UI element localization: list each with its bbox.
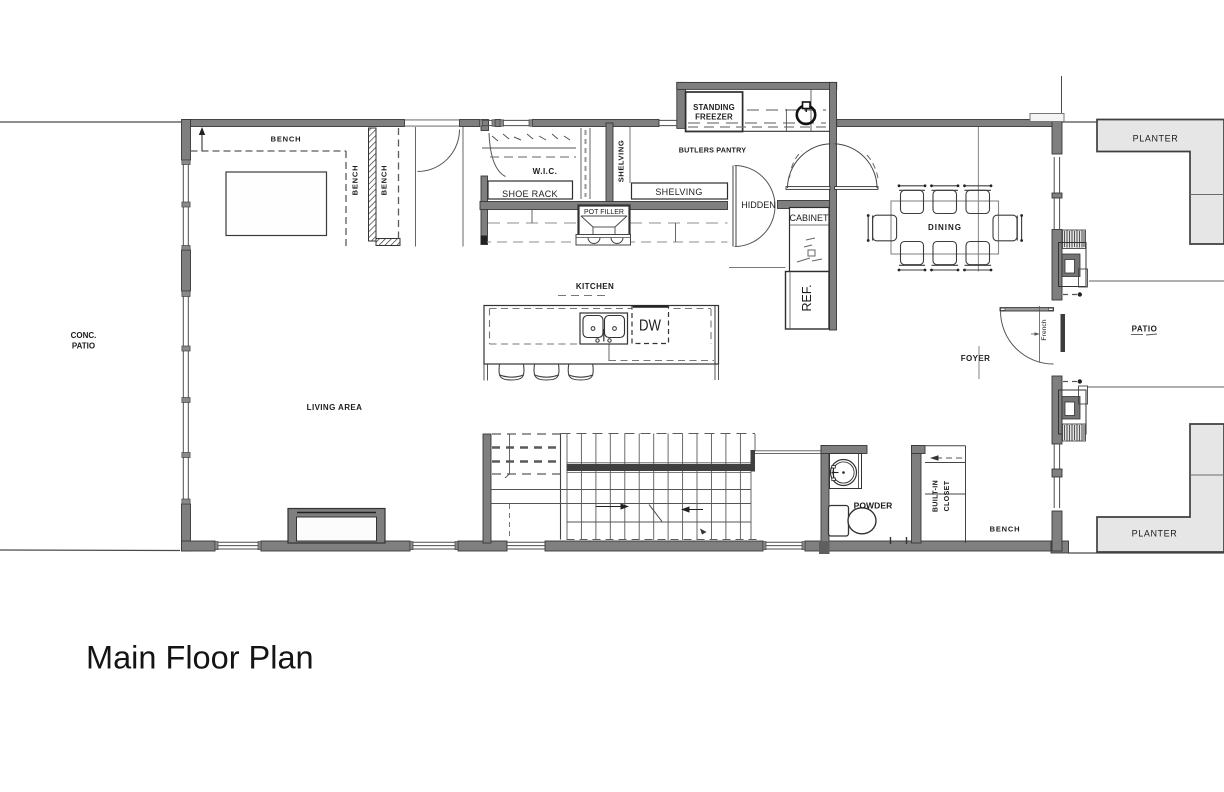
svg-text:Main Floor Plan: Main Floor Plan xyxy=(86,640,314,676)
svg-text:FOYER: FOYER xyxy=(961,354,991,363)
svg-text:DINING: DINING xyxy=(928,223,962,232)
svg-text:DW: DW xyxy=(639,318,662,335)
svg-text:STANDING: STANDING xyxy=(693,103,735,112)
svg-text:French: French xyxy=(1041,319,1048,340)
svg-text:PLANTER: PLANTER xyxy=(1133,134,1179,144)
svg-text:KITCHEN: KITCHEN xyxy=(576,282,614,291)
svg-text:SHOE RACK: SHOE RACK xyxy=(502,189,558,199)
svg-text:CABINET: CABINET xyxy=(789,213,829,223)
svg-text:SHELVING: SHELVING xyxy=(655,187,702,197)
svg-text:REF.: REF. xyxy=(800,284,814,311)
svg-text:PATIO: PATIO xyxy=(72,342,95,351)
svg-text:BENCH: BENCH xyxy=(271,135,302,144)
svg-text:CLOSET: CLOSET xyxy=(944,480,951,511)
svg-text:BENCH: BENCH xyxy=(990,525,1021,534)
svg-text:POT FILLER: POT FILLER xyxy=(584,209,624,216)
svg-text:POWDER: POWDER xyxy=(854,501,893,511)
svg-text:SHELVING: SHELVING xyxy=(617,140,626,183)
svg-text:BUILT-IN: BUILT-IN xyxy=(933,480,940,512)
svg-text:HIDDEN: HIDDEN xyxy=(741,200,776,210)
svg-text:W.I.C.: W.I.C. xyxy=(533,167,558,176)
svg-text:CONC.: CONC. xyxy=(71,331,97,340)
svg-text:BENCH: BENCH xyxy=(351,165,360,196)
svg-text:LIVING AREA: LIVING AREA xyxy=(307,403,363,412)
svg-text:BUTLERS PANTRY: BUTLERS PANTRY xyxy=(679,146,747,155)
svg-text:BENCH: BENCH xyxy=(380,165,389,196)
svg-text:PATIO: PATIO xyxy=(1132,325,1158,334)
svg-text:FREEZER: FREEZER xyxy=(695,113,733,122)
svg-text:PLANTER: PLANTER xyxy=(1132,529,1178,539)
